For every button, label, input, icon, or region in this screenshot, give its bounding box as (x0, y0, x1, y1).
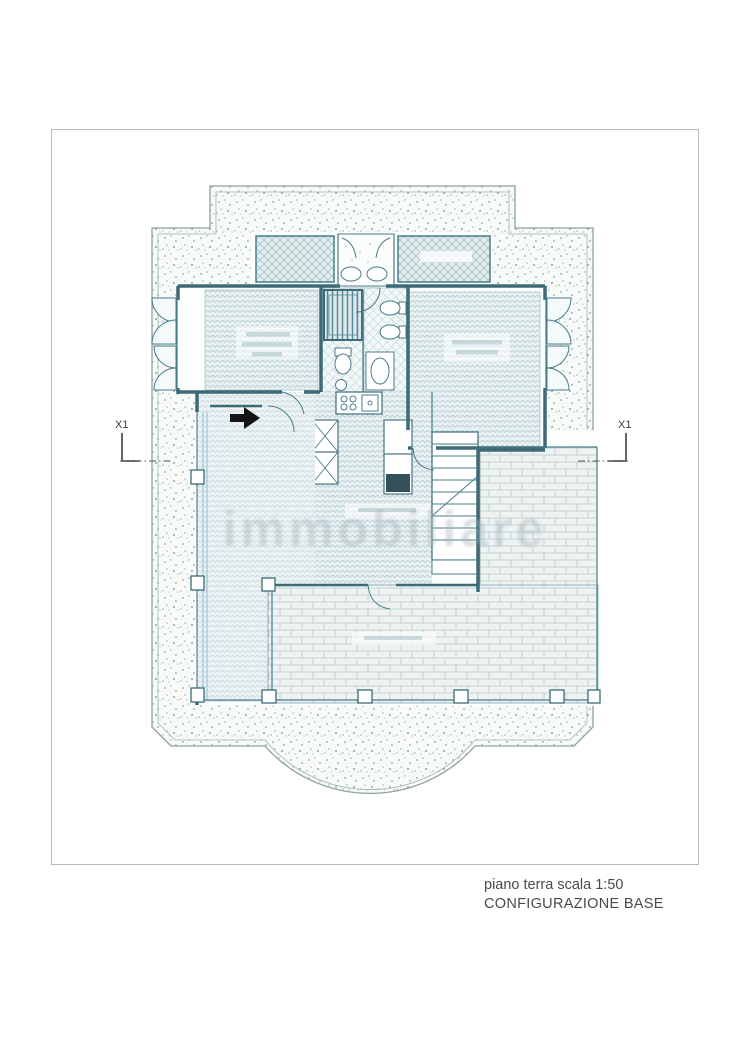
section-marker-left-label: X1 (115, 419, 128, 431)
bedroom-left (205, 290, 318, 390)
planter-right (398, 236, 490, 282)
paved-terrace-right (480, 447, 597, 590)
appliance-dark (386, 474, 410, 492)
toilet (380, 301, 400, 315)
veranda (268, 585, 598, 703)
bathroom-left (322, 288, 364, 392)
caption: piano terra scala 1:50 CONFIGURAZIONE BA… (484, 876, 724, 914)
page: { "document": { "caption": { "line1": "p… (0, 0, 745, 1050)
planter-left (256, 236, 334, 282)
bidet (380, 325, 400, 339)
toilet (335, 354, 351, 374)
section-marker-right-label: X1 (618, 419, 631, 431)
caption-configuration-line: CONFIGURAZIONE BASE (484, 895, 724, 914)
sink (336, 380, 347, 391)
kitchen-sink (362, 395, 378, 411)
caption-scale-line: piano terra scala 1:50 (484, 876, 724, 895)
bathroom-right (364, 288, 408, 392)
